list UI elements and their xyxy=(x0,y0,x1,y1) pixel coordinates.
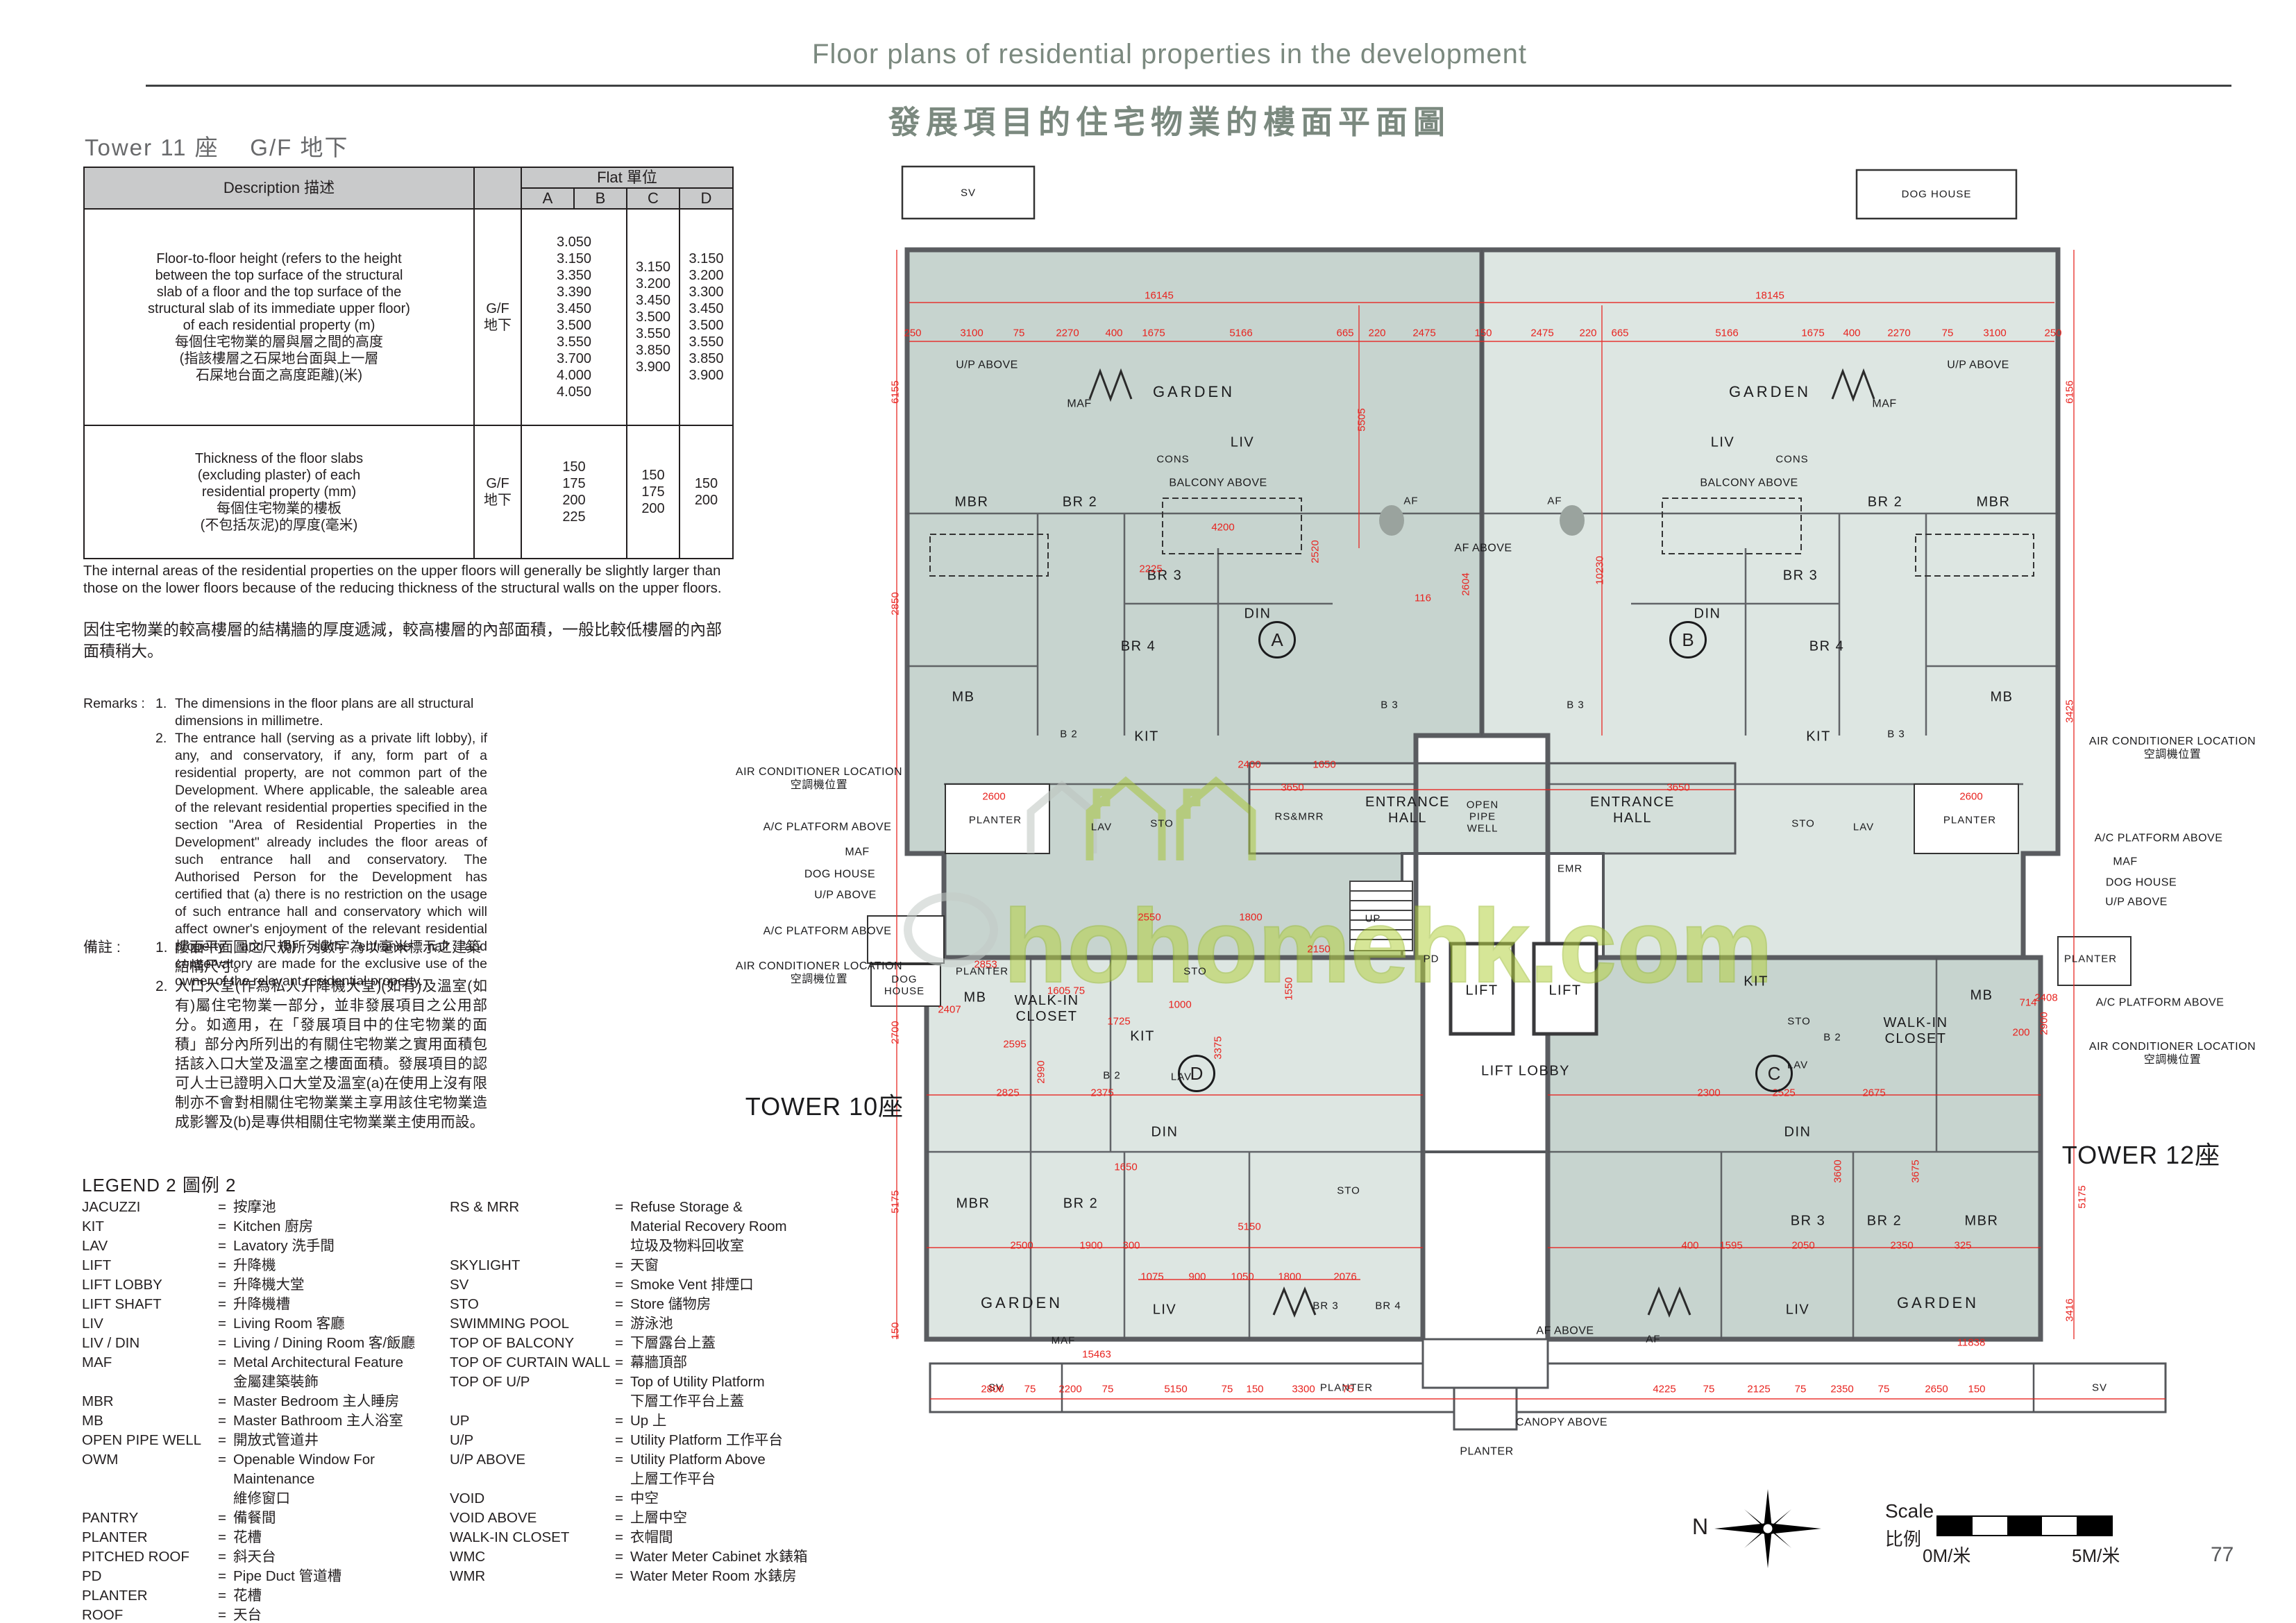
legend-abbr: KIT xyxy=(82,1217,218,1237)
plan-dimension: 2407 xyxy=(938,1004,961,1016)
legend-row: SKYLIGHT=天窗 xyxy=(450,1256,811,1275)
plan-text: MAF xyxy=(845,846,869,859)
plan-text: A/C PLATFORM ABOVE xyxy=(763,821,892,834)
legend-equals: = xyxy=(218,1314,233,1334)
plan-text: MAF xyxy=(1067,398,1091,411)
plan-dimension: 2550 xyxy=(1138,912,1160,924)
legend-title: LEGEND 2 圖例 2 xyxy=(82,1171,237,1197)
legend-definition: 開放式管道井 xyxy=(233,1431,319,1450)
legend-row: LIFT SHAFT=升降機槽 xyxy=(82,1295,443,1314)
plan-dimension: 2270 xyxy=(1887,328,1910,339)
plan-text: LIFT xyxy=(1465,983,1498,999)
legend-equals: = xyxy=(218,1237,233,1256)
plan-dimension: 2600 xyxy=(1959,791,1982,803)
plan-dimension: 2125 xyxy=(1747,1384,1770,1395)
plan-text: AF xyxy=(1646,1334,1660,1345)
legend-row: LIFT LOBBY=升降機大堂 xyxy=(82,1275,443,1295)
legend-abbr: TOP OF CURTAIN WALL xyxy=(450,1353,615,1373)
floor-plan: hohomehk.com SVDOG HOUSEGARDENGARDENU/P … xyxy=(763,160,2231,1471)
legend-row: SWIMMING POOL=游泳池 xyxy=(450,1314,811,1334)
legend-abbr: SKYLIGHT xyxy=(450,1256,615,1275)
plan-text: CONS xyxy=(1775,454,1808,466)
plan-labels-layer: SVDOG HOUSEGARDENGARDENU/P ABOVEU/P ABOV… xyxy=(763,160,2231,1471)
plan-text: AF xyxy=(1403,495,1418,507)
legend-abbr: U/P xyxy=(450,1431,615,1450)
plan-text: MB xyxy=(964,990,987,1006)
legend-definition: Master Bedroom 主人睡房 xyxy=(233,1392,399,1411)
plan-text: PLANTER xyxy=(969,815,1022,826)
row2-desc: Thickness of the floor slabs (excluding … xyxy=(84,425,474,559)
legend-equals: = xyxy=(218,1198,233,1217)
plan-text: TOWER 12座 xyxy=(2062,1135,2220,1171)
plan-dimension: 900 xyxy=(1188,1271,1206,1283)
legend-abbr: SV xyxy=(450,1275,615,1295)
legend-abbr: MB xyxy=(82,1411,218,1431)
legend-abbr: LIFT LOBBY xyxy=(82,1275,218,1295)
plan-text: PLANTER xyxy=(1320,1382,1373,1394)
tower-floor-heading: Tower 11 座 G/F 地下 xyxy=(85,129,348,162)
plan-dimension: 3375 xyxy=(1213,1036,1224,1059)
plan-dimension: 75 xyxy=(1024,1384,1036,1395)
legend-definition: 斜天台 xyxy=(233,1547,276,1567)
legend-abbr: WMC xyxy=(450,1547,615,1567)
remark-text: 入口大堂(作為私人升降機大堂)(如有)及溫室(如有)屬住宅物業一部分，並非發展項… xyxy=(175,977,487,1132)
floor-header xyxy=(474,167,521,209)
legend-equals: = xyxy=(615,1334,630,1353)
plan-text: U/P ABOVE xyxy=(1947,359,2009,372)
plan-dimension: 1900 xyxy=(1079,1240,1102,1252)
plan-text: BR 2 xyxy=(1063,1196,1098,1212)
row1-desc: Floor-to-floor height (refers to the hei… xyxy=(84,209,474,425)
plan-dimension: 3650 xyxy=(1666,782,1689,794)
plan-dimension: 714 xyxy=(2019,997,2036,1009)
legend-definition: 上層中空 xyxy=(630,1509,687,1528)
plan-text: AIR CONDITIONER LOCATION 空調機位置 xyxy=(2089,1040,2256,1067)
legend-equals: = xyxy=(218,1450,233,1470)
plan-text: DIN xyxy=(1694,606,1721,622)
legend-definition: Master Bathroom 主人浴室 xyxy=(233,1411,403,1431)
legend-definition: 備餐間 xyxy=(233,1509,276,1528)
plan-dimension: 1675 xyxy=(1801,328,1824,339)
plan-text: RS&MRR xyxy=(1274,811,1324,823)
legend-definition: 衣帽間 xyxy=(630,1528,673,1547)
plan-dimension: 1800 xyxy=(1239,912,1262,924)
plan-dimension: 2825 xyxy=(996,1087,1019,1099)
plan-text: DIN xyxy=(1784,1125,1812,1141)
remarks-label-zh: 備註 : xyxy=(83,938,155,958)
plan-dimension: 1650 xyxy=(1114,1162,1137,1173)
plan-dimension: 2270 xyxy=(1056,328,1079,339)
plan-text: MAF xyxy=(2113,856,2137,869)
legend-row: U/P ABOVE=Utility Platform Above 上層工作平台 xyxy=(450,1450,811,1489)
plan-text: U/P ABOVE xyxy=(956,359,1018,372)
note-en: The internal areas of the residential pr… xyxy=(83,562,722,597)
legend-equals: = xyxy=(218,1606,233,1623)
plan-dimension: 665 xyxy=(1611,328,1628,339)
plan-text: DOG HOUSE xyxy=(884,974,925,997)
legend-row: LIV=Living Room 客廳 xyxy=(82,1314,443,1334)
plan-dimension: 2050 xyxy=(1791,1240,1814,1252)
legend-equals: = xyxy=(615,1509,630,1528)
plan-dimension: 2850 xyxy=(890,592,902,615)
legend-definition: Utility Platform 工作平台 xyxy=(630,1431,783,1450)
page-number: 77 xyxy=(2211,1543,2234,1567)
plan-dimension: 2375 xyxy=(1090,1087,1113,1099)
plan-dimension: 2800 xyxy=(981,1384,1004,1395)
plan-text: ENTRANCE HALL xyxy=(1590,794,1675,826)
plan-text: MBR xyxy=(955,495,989,511)
plan-text: OPEN PIPE WELL xyxy=(1467,799,1499,835)
plan-text: A/C PLATFORM ABOVE xyxy=(2096,996,2225,1010)
plan-dimension: 150 xyxy=(890,1322,902,1339)
legend-equals: = xyxy=(615,1547,630,1567)
legend-abbr: LIFT xyxy=(82,1256,218,1275)
plan-dimension: 3600 xyxy=(1832,1159,1844,1182)
plan-dimension: 3650 xyxy=(1281,782,1303,794)
legend-equals: = xyxy=(615,1256,630,1275)
plan-dimension: 3675 xyxy=(1910,1159,1922,1182)
note-zh: 因住宅物業的較高樓層的結構牆的厚度遞減，較高樓層的內部面積，一般比較低樓層的內部… xyxy=(83,619,722,662)
plan-text: LIV xyxy=(1786,1302,1810,1318)
legend-definition: 花槽 xyxy=(233,1528,262,1547)
row1-floor: G/F 地下 xyxy=(474,209,521,425)
plan-text: B 3 xyxy=(1887,729,1905,740)
plan-dimension: 10230 xyxy=(1594,556,1606,585)
plan-text: B 2 xyxy=(1103,1070,1121,1082)
legend-row: PLANTER=花槽 xyxy=(82,1528,443,1547)
plan-dimension: 1605 75 xyxy=(1047,985,1085,997)
plan-dimension: 200 xyxy=(2012,1027,2029,1039)
legend-definition: 升降機大堂 xyxy=(233,1275,305,1295)
unit-label-circle: A xyxy=(1258,621,1296,658)
legend-definition: Smoke Vent 排煙口 xyxy=(630,1275,754,1295)
plan-text: PD xyxy=(1424,953,1440,965)
legend-abbr: MAF xyxy=(82,1353,218,1373)
legend-equals: = xyxy=(615,1528,630,1547)
legend-row: MB=Master Bathroom 主人浴室 xyxy=(82,1411,443,1431)
row1-c: 3.150 3.200 3.450 3.500 3.550 3.850 3.90… xyxy=(627,209,679,425)
plan-text: CANOPY ABOVE xyxy=(1516,1416,1607,1429)
plan-dimension: 5166 xyxy=(1715,328,1738,339)
plan-text: CONS xyxy=(1156,454,1189,466)
plan-text: PLANTER xyxy=(956,966,1008,978)
plan-text: PLANTER xyxy=(2064,953,2117,965)
plan-text: U/P ABOVE xyxy=(814,889,877,902)
plan-dimension: 2990 xyxy=(1036,1060,1047,1083)
legend-definition: 中空 xyxy=(630,1489,659,1509)
legend-definition: Pipe Duct 管道槽 xyxy=(233,1567,341,1586)
legend-abbr: VOID ABOVE xyxy=(450,1509,615,1528)
legend-equals: = xyxy=(218,1392,233,1411)
plan-text: MB xyxy=(1991,690,2014,706)
unit-label-circle: B xyxy=(1669,621,1707,658)
plan-dimension: 2350 xyxy=(1830,1384,1853,1395)
plan-dimension: 1675 xyxy=(1142,328,1165,339)
legend-equals: = xyxy=(218,1411,233,1431)
plan-dimension: 11838 xyxy=(1957,1337,1986,1349)
plan-dimension: 1075 xyxy=(1140,1271,1163,1283)
legend-row: LAV=Lavatory 洗手間 xyxy=(82,1237,443,1256)
plan-dimension: 2650 xyxy=(1925,1384,1948,1395)
plan-dimension: 2700 xyxy=(890,1021,902,1044)
legend-definition: 天台 xyxy=(233,1606,262,1623)
legend-definition: Water Meter Room 水錶房 xyxy=(630,1567,797,1586)
plan-text: BALCONY ABOVE xyxy=(1169,477,1267,490)
plan-text: DOG HOUSE xyxy=(1902,189,1972,201)
plan-dimension: 2408 xyxy=(2034,992,2057,1004)
legend-row: WMC=Water Meter Cabinet 水錶箱 xyxy=(450,1547,811,1567)
remark-num: 1. xyxy=(155,938,175,958)
legend-definition: Living / Dining Room 客/飯廳 xyxy=(233,1334,415,1353)
plan-dimension: 75 xyxy=(1942,328,1954,339)
plan-text: MBR xyxy=(1965,1214,1999,1230)
plan-dimension: 75 xyxy=(1222,1384,1233,1395)
plan-text: AF xyxy=(1547,495,1562,507)
legend-definition: Lavatory 洗手間 xyxy=(233,1237,335,1256)
plan-dimension: 1725 xyxy=(1107,1016,1130,1028)
flat-a: A xyxy=(521,188,574,209)
legend-equals: = xyxy=(615,1431,630,1450)
legend-abbr: LIV / DIN xyxy=(82,1334,218,1353)
plan-dimension: 2400 xyxy=(1238,759,1260,771)
plan-dimension: 4200 xyxy=(1211,522,1234,534)
plan-dimension: 5175 xyxy=(2077,1185,2088,1208)
plan-text: STO xyxy=(1787,1016,1811,1028)
plan-dimension: 2475 xyxy=(1412,328,1435,339)
legend-row: PITCHED ROOF=斜天台 xyxy=(82,1547,443,1567)
legend-definition: 按摩池 xyxy=(233,1198,276,1217)
title-divider xyxy=(146,85,2231,87)
brochure-page: Floor plans of residential properties in… xyxy=(0,0,2296,1623)
legend-abbr: LIV xyxy=(82,1314,218,1334)
flat-c: C xyxy=(627,188,679,209)
legend-row: MBR=Master Bedroom 主人睡房 xyxy=(82,1392,443,1411)
plan-dimension: 2076 xyxy=(1333,1271,1356,1283)
flat-d: D xyxy=(679,188,733,209)
plan-text: GARDEN xyxy=(1897,1294,1979,1312)
legend-abbr: PITCHED ROOF xyxy=(82,1547,218,1567)
plan-text: SV xyxy=(988,1382,1004,1394)
plan-text: BR 4 xyxy=(1121,639,1156,655)
legend-abbr: TOP OF U/P xyxy=(450,1373,615,1392)
plan-dimension: 5150 xyxy=(1238,1221,1260,1233)
plan-dimension: 2604 xyxy=(1460,572,1472,595)
plan-dimension: 5505 xyxy=(1356,408,1368,431)
legend-definition: 下層露台上蓋 xyxy=(630,1334,716,1353)
legend-definition: 升降機 xyxy=(233,1256,276,1275)
legend-definition: Living Room 客廳 xyxy=(233,1314,345,1334)
legend-definition: Metal Architectural Feature 金屬建築裝飾 xyxy=(233,1353,403,1392)
plan-text: MAF xyxy=(1052,1335,1076,1347)
legend-abbr: OPEN PIPE WELL xyxy=(82,1431,218,1450)
plan-text: EMR xyxy=(1558,863,1582,875)
plan-dimension: 150 xyxy=(1246,1384,1263,1395)
legend-abbr: ROOF xyxy=(82,1606,218,1623)
plan-text: KIT xyxy=(1806,729,1831,745)
remarks-zh: 備註 : 1. 樓面平面圖之尺規所列數字為以毫米標示之建築結構尺寸。 2. 入口… xyxy=(83,938,486,1132)
plan-dimension: 2675 xyxy=(1862,1087,1885,1099)
plan-text: PLANTER xyxy=(1460,1445,1513,1459)
page-title-en: Floor plans of residential properties in… xyxy=(146,39,2193,70)
unit-label-circle: D xyxy=(1178,1055,1215,1092)
spec-table: Description 描述 Flat 單位 A B C D Floor-to-… xyxy=(83,167,734,559)
legend-equals: = xyxy=(218,1567,233,1586)
row1-d: 3.150 3.200 3.300 3.450 3.500 3.550 3.85… xyxy=(679,209,733,425)
plan-dimension: 15463 xyxy=(1082,1349,1111,1361)
legend-row: WMR=Water Meter Room 水錶房 xyxy=(450,1567,811,1586)
legend-abbr: UP xyxy=(450,1411,615,1431)
plan-text: KIT xyxy=(1744,974,1769,990)
legend-equals: = xyxy=(615,1373,630,1392)
plan-dimension: 6156 xyxy=(2064,380,2076,403)
legend-row: OPEN PIPE WELL=開放式管道井 xyxy=(82,1431,443,1450)
legend-definition: 幕牆頂部 xyxy=(630,1353,687,1373)
plan-dimension: 4225 xyxy=(1653,1384,1675,1395)
plan-dimension: 75 xyxy=(1013,328,1025,339)
legend-definition: Utility Platform Above 上層工作平台 xyxy=(630,1450,766,1489)
plan-dimension: 220 xyxy=(1368,328,1385,339)
plan-dimension: 2200 xyxy=(1058,1384,1081,1395)
legend-definition: Kitchen 廚房 xyxy=(233,1217,313,1237)
flat-header: Flat 單位 xyxy=(521,167,733,188)
plan-dimension: 150 xyxy=(1474,328,1492,339)
north-compass-icon xyxy=(1709,1486,1827,1583)
legend-definition: Top of Utility Platform 下層工作平台上蓋 xyxy=(630,1373,765,1411)
legend-row: PD=Pipe Duct 管道槽 xyxy=(82,1567,443,1586)
plan-text: DIN xyxy=(1151,1125,1179,1141)
plan-dimension: 16145 xyxy=(1145,290,1174,302)
remark-text: The dimensions in the floor plans are al… xyxy=(175,695,487,730)
plan-dimension: 5150 xyxy=(1164,1384,1187,1395)
plan-text: STO xyxy=(1150,818,1174,830)
plan-text: GARDEN xyxy=(1153,383,1235,401)
plan-text: B 3 xyxy=(1381,699,1399,711)
plan-text: B 3 xyxy=(1567,699,1585,711)
plan-dimension: 75 xyxy=(1342,1384,1354,1395)
plan-dimension: 400 xyxy=(1105,328,1122,339)
legend-definition: 花槽 xyxy=(233,1586,262,1606)
plan-text: A/C PLATFORM ABOVE xyxy=(2095,832,2223,845)
plan-dimension: 3300 xyxy=(1292,1384,1315,1395)
legend-column-2: RS & MRR=Refuse Storage & Material Recov… xyxy=(450,1198,811,1586)
plan-text: BR 4 xyxy=(1809,639,1844,655)
row1-ab: 3.050 3.150 3.350 3.390 3.450 3.500 3.55… xyxy=(521,209,627,425)
legend-equals: = xyxy=(218,1295,233,1314)
plan-dimension: 18145 xyxy=(1755,290,1784,302)
legend-abbr: PLANTER xyxy=(82,1528,218,1547)
plan-text: BR 2 xyxy=(1063,495,1097,511)
unit-label-circle: C xyxy=(1755,1055,1793,1092)
plan-text: LIV xyxy=(1711,435,1735,451)
plan-text: LIV xyxy=(1231,435,1255,451)
plan-dimension: 300 xyxy=(1122,1240,1140,1252)
page-title-zh: 發展項目的住宅物業的樓面平面圖 xyxy=(146,97,2193,143)
legend-row: TOP OF BALCONY=下層露台上蓋 xyxy=(450,1334,811,1353)
legend-equals: = xyxy=(615,1275,630,1295)
legend-row: VOID=中空 xyxy=(450,1489,811,1509)
north-label: N xyxy=(1692,1514,1708,1540)
legend-definition: Store 儲物房 xyxy=(630,1295,711,1314)
plan-dimension: 2600 xyxy=(982,791,1005,803)
remarks-label: Remarks : xyxy=(83,695,155,713)
legend-row: SV=Smoke Vent 排煙口 xyxy=(450,1275,811,1295)
plan-text: BR 2 xyxy=(1867,1214,1902,1230)
plan-text: LIFT xyxy=(1548,983,1581,999)
legend-equals: = xyxy=(218,1256,233,1275)
plan-text: LAV xyxy=(1091,822,1112,833)
legend-abbr: PD xyxy=(82,1567,218,1586)
legend-row: STO=Store 儲物房 xyxy=(450,1295,811,1314)
legend-row: PANTRY=備餐間 xyxy=(82,1509,443,1528)
legend-abbr: RS & MRR xyxy=(450,1198,615,1217)
plan-dimension: 665 xyxy=(1336,328,1353,339)
legend-equals: = xyxy=(218,1586,233,1606)
desc-header: Description 描述 xyxy=(84,167,474,209)
legend-row: OWM=Openable Window For Maintenance 維修窗口 xyxy=(82,1450,443,1509)
plan-text: STO xyxy=(1791,818,1815,830)
plan-dimension: 2350 xyxy=(1890,1240,1913,1252)
plan-dimension: 2853 xyxy=(974,959,997,971)
plan-text: STO xyxy=(1183,966,1207,978)
plan-text: UP xyxy=(1365,913,1381,925)
legend-definition: Water Meter Cabinet 水錶箱 xyxy=(630,1547,808,1567)
legend-abbr: VOID xyxy=(450,1489,615,1509)
legend-row: MAF=Metal Architectural Feature 金屬建築裝飾 xyxy=(82,1353,443,1392)
plan-text: BR 3 xyxy=(1147,568,1182,584)
legend-equals: = xyxy=(218,1431,233,1450)
scale-start-label: 0M/米 xyxy=(1923,1542,1970,1567)
plan-dimension: 75 xyxy=(1795,1384,1807,1395)
plan-text: DIN xyxy=(1244,606,1272,622)
plan-text: TOWER 10座 xyxy=(745,1087,904,1123)
legend-column-1: JACUZZI=按摩池KIT=Kitchen 廚房LAV=Lavatory 洗手… xyxy=(82,1198,443,1623)
plan-dimension: 325 xyxy=(1954,1240,1971,1252)
plan-dimension: 116 xyxy=(1415,593,1431,604)
legend-equals: = xyxy=(615,1567,630,1586)
legend-row: TOP OF U/P=Top of Utility Platform 下層工作平… xyxy=(450,1373,811,1411)
legend-abbr: WALK-IN CLOSET xyxy=(450,1528,615,1547)
plan-text: AF ABOVE xyxy=(1454,542,1512,555)
plan-dimension: 400 xyxy=(1843,328,1860,339)
legend-abbr: U/P ABOVE xyxy=(450,1450,615,1470)
plan-text: LIFT LOBBY xyxy=(1481,1064,1570,1080)
plan-text: AIR CONDITIONER LOCATION 空調機位置 xyxy=(2089,735,2256,761)
plan-dimension: 3100 xyxy=(1983,328,2006,339)
legend-definition: Up 上 xyxy=(630,1411,666,1431)
legend-equals: = xyxy=(218,1353,233,1373)
plan-dimension: 220 xyxy=(1579,328,1596,339)
legend-row: UP=Up 上 xyxy=(450,1411,811,1431)
plan-dimension: 1000 xyxy=(1168,999,1191,1011)
plan-text: SV xyxy=(961,187,976,199)
plan-text: BR 3 xyxy=(1791,1214,1825,1230)
legend-row: PLANTER=花槽 xyxy=(82,1586,443,1606)
legend-equals: = xyxy=(615,1353,630,1373)
plan-dimension: 250 xyxy=(2044,328,2061,339)
plan-dimension: 150 xyxy=(1968,1384,1985,1395)
legend-definition: Openable Window For Maintenance 維修窗口 xyxy=(233,1450,443,1509)
plan-text: STO xyxy=(1337,1185,1360,1197)
remark-text: 樓面平面圖之尺規所列數字為以毫米標示之建築結構尺寸。 xyxy=(175,938,487,977)
legend-row: VOID ABOVE=上層中空 xyxy=(450,1509,811,1528)
legend-equals: = xyxy=(615,1314,630,1334)
remark-num: 2. xyxy=(155,730,175,747)
plan-text: DOG HOUSE xyxy=(804,868,875,881)
legend-definition: 游泳池 xyxy=(630,1314,673,1334)
plan-dimension: 250 xyxy=(904,328,921,339)
plan-dimension: 400 xyxy=(1681,1240,1698,1252)
plan-dimension: 2900 xyxy=(2038,1012,2050,1035)
